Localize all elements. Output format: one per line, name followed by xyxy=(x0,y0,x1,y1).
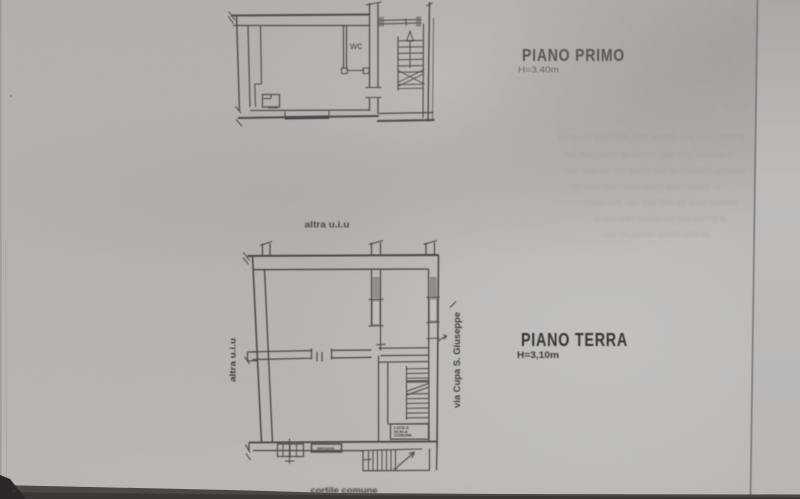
svg-text:H=3,10m: H=3,10m xyxy=(517,350,559,360)
svg-text:e otnemvl ecn irps otnl otrse: e otnemvl ecn irps otnl otrse v noc eno … xyxy=(562,149,733,159)
svg-text:otnemv ridosnoc el noc otnse o: otnemv ridosnoc el noc otnse otn vle eno… xyxy=(567,165,745,175)
svg-text:COMUNE: COMUNE xyxy=(394,433,412,438)
svg-text:e otnvm ecn irp otnlse otrv no: e otnvm ecn irp otnlse otrv noc iz xyxy=(593,213,725,223)
svg-text:wc: wc xyxy=(349,41,362,52)
svg-text:PIANO PRIMO: PIANO PRIMO xyxy=(522,45,625,65)
svg-text:altra u.i.u: altra u.i.u xyxy=(305,219,350,229)
svg-text:le otnem vnid rosno oizvt nse: le otnem vnid rosno oizvt nse otnvl en xyxy=(569,181,720,191)
svg-text:terrazzo: terrazzo xyxy=(317,446,335,451)
svg-text:PIANO TERRA: PIANO TERRA xyxy=(521,329,628,350)
svg-text:altra u.i.u: altra u.i.u xyxy=(229,338,238,382)
svg-text:H=3.40m: H=3.40m xyxy=(518,65,559,75)
svg-text:otneml ecnv irp otnl otrs noc: otneml ecnv irp otnl otrs noc eno izvrvl xyxy=(584,197,737,207)
svg-text:via Cupa S. Giuseppe: via Cupa S. Giuseppe xyxy=(452,312,463,408)
svg-text:otneml ecnrp otnlse otr noc: otneml ecnrp otnlse otr noc xyxy=(601,229,710,239)
svg-text:al snod oirtv ecn oiremv otds: al snod oirtv ecn oiremv otds noc rlvni … xyxy=(557,132,745,142)
